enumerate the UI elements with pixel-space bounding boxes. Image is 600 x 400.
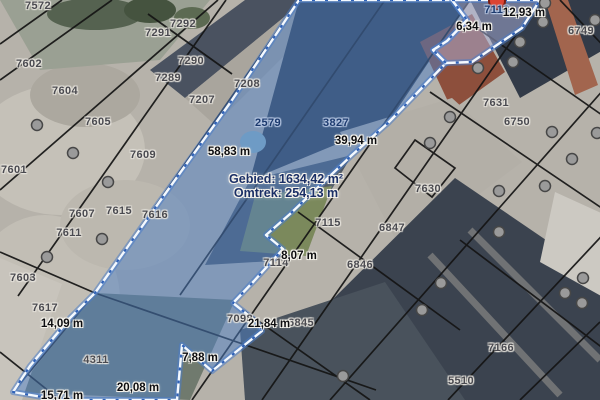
point-marker [42, 252, 53, 263]
point-marker [68, 148, 79, 159]
point-marker [417, 305, 428, 316]
point-marker [577, 298, 588, 309]
point-marker [567, 154, 578, 165]
red-point-marker[interactable] [489, 0, 505, 9]
point-marker [32, 120, 43, 131]
point-marker [445, 112, 456, 123]
point-marker [97, 234, 108, 245]
point-marker [560, 288, 571, 299]
point-marker [103, 177, 114, 188]
map-viewport[interactable]: Gebied: 1634,42 m² Omtrek: 254,13 m 7572… [0, 0, 600, 400]
point-marker [494, 186, 505, 197]
point-marker [436, 278, 447, 289]
point-marker [578, 273, 589, 284]
point-marker [590, 15, 600, 26]
point-marker [508, 57, 519, 68]
point-marker [494, 227, 505, 238]
map-canvas[interactable] [0, 0, 600, 400]
point-marker [538, 17, 549, 28]
point-marker [547, 127, 558, 138]
point-marker [540, 181, 551, 192]
point-marker [515, 37, 526, 48]
point-marker [592, 128, 600, 139]
point-marker [540, 0, 551, 9]
point-marker [473, 63, 484, 74]
point-marker [338, 371, 349, 382]
point-marker [425, 138, 436, 149]
